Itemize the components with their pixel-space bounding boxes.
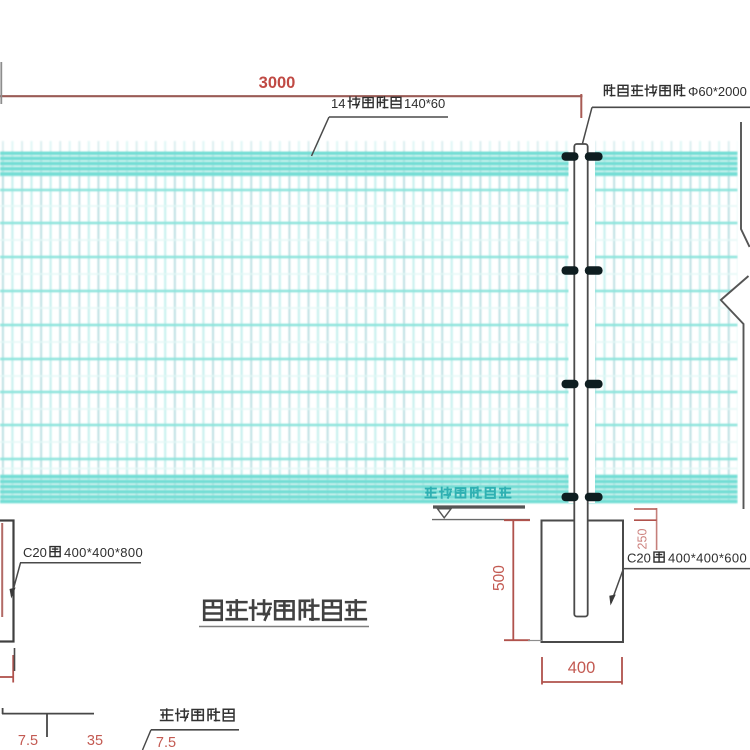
svg-text:400*400*600: 400*400*600 bbox=[668, 551, 747, 566]
svg-text:3000: 3000 bbox=[259, 74, 296, 92]
svg-text:7.5: 7.5 bbox=[156, 735, 176, 750]
svg-text:400*400*800: 400*400*800 bbox=[64, 545, 143, 560]
svg-text:35: 35 bbox=[87, 733, 103, 749]
svg-text:C20: C20 bbox=[23, 545, 47, 560]
svg-text:7.5: 7.5 bbox=[18, 733, 38, 749]
svg-text:140*60: 140*60 bbox=[404, 96, 445, 111]
svg-text:400: 400 bbox=[568, 659, 596, 677]
svg-text:C20: C20 bbox=[627, 551, 651, 566]
svg-text:Φ60*2000: Φ60*2000 bbox=[688, 84, 747, 99]
svg-text:500: 500 bbox=[491, 565, 508, 591]
svg-text:14: 14 bbox=[331, 96, 345, 111]
svg-text:250: 250 bbox=[636, 529, 650, 550]
